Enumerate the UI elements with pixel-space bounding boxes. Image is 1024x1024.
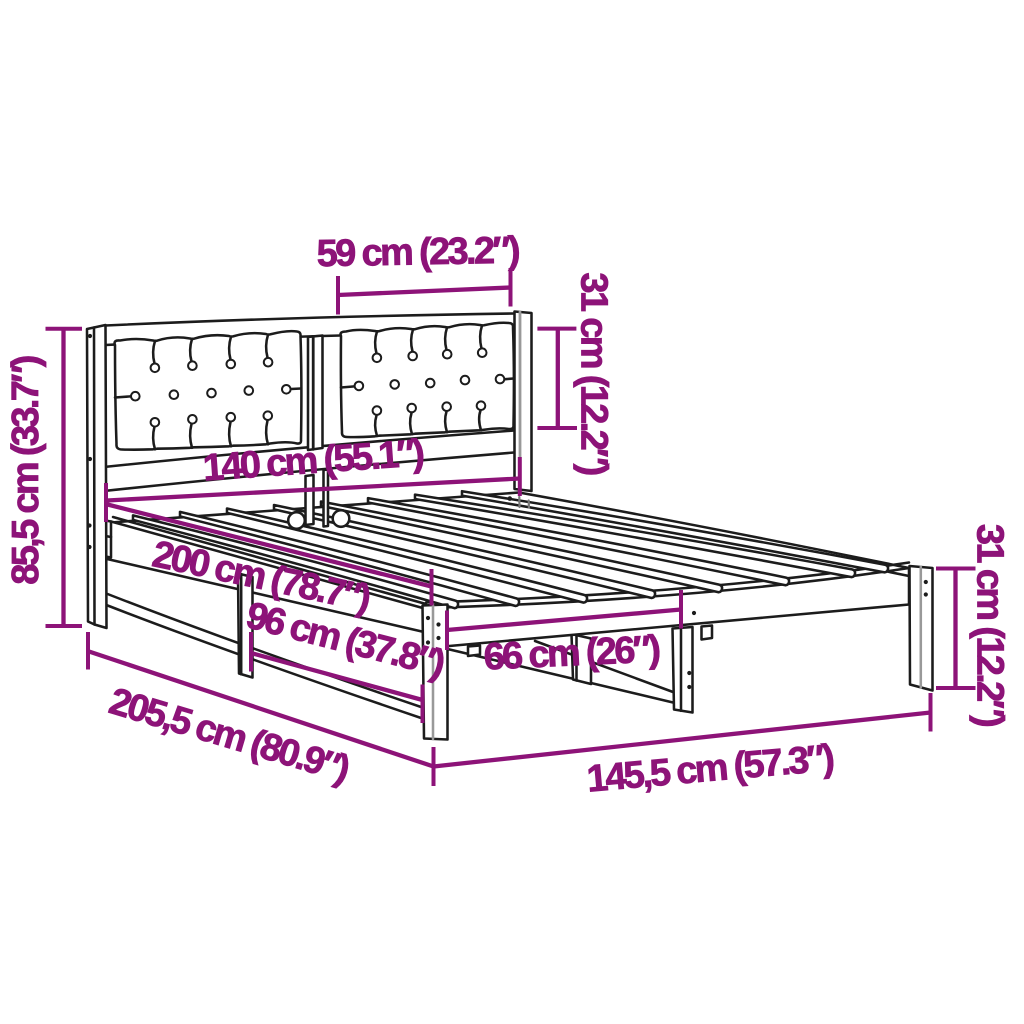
svg-text:31 cm (12.2″): 31 cm (12.2″): [573, 272, 615, 474]
svg-text:85,5 cm (33.7″): 85,5 cm (33.7″): [5, 356, 47, 585]
svg-text:59 cm (23.2″): 59 cm (23.2″): [316, 230, 519, 276]
svg-text:31 cm (12.2″): 31 cm (12.2″): [969, 524, 1011, 726]
svg-text:66 cm (26″): 66 cm (26″): [483, 628, 661, 678]
